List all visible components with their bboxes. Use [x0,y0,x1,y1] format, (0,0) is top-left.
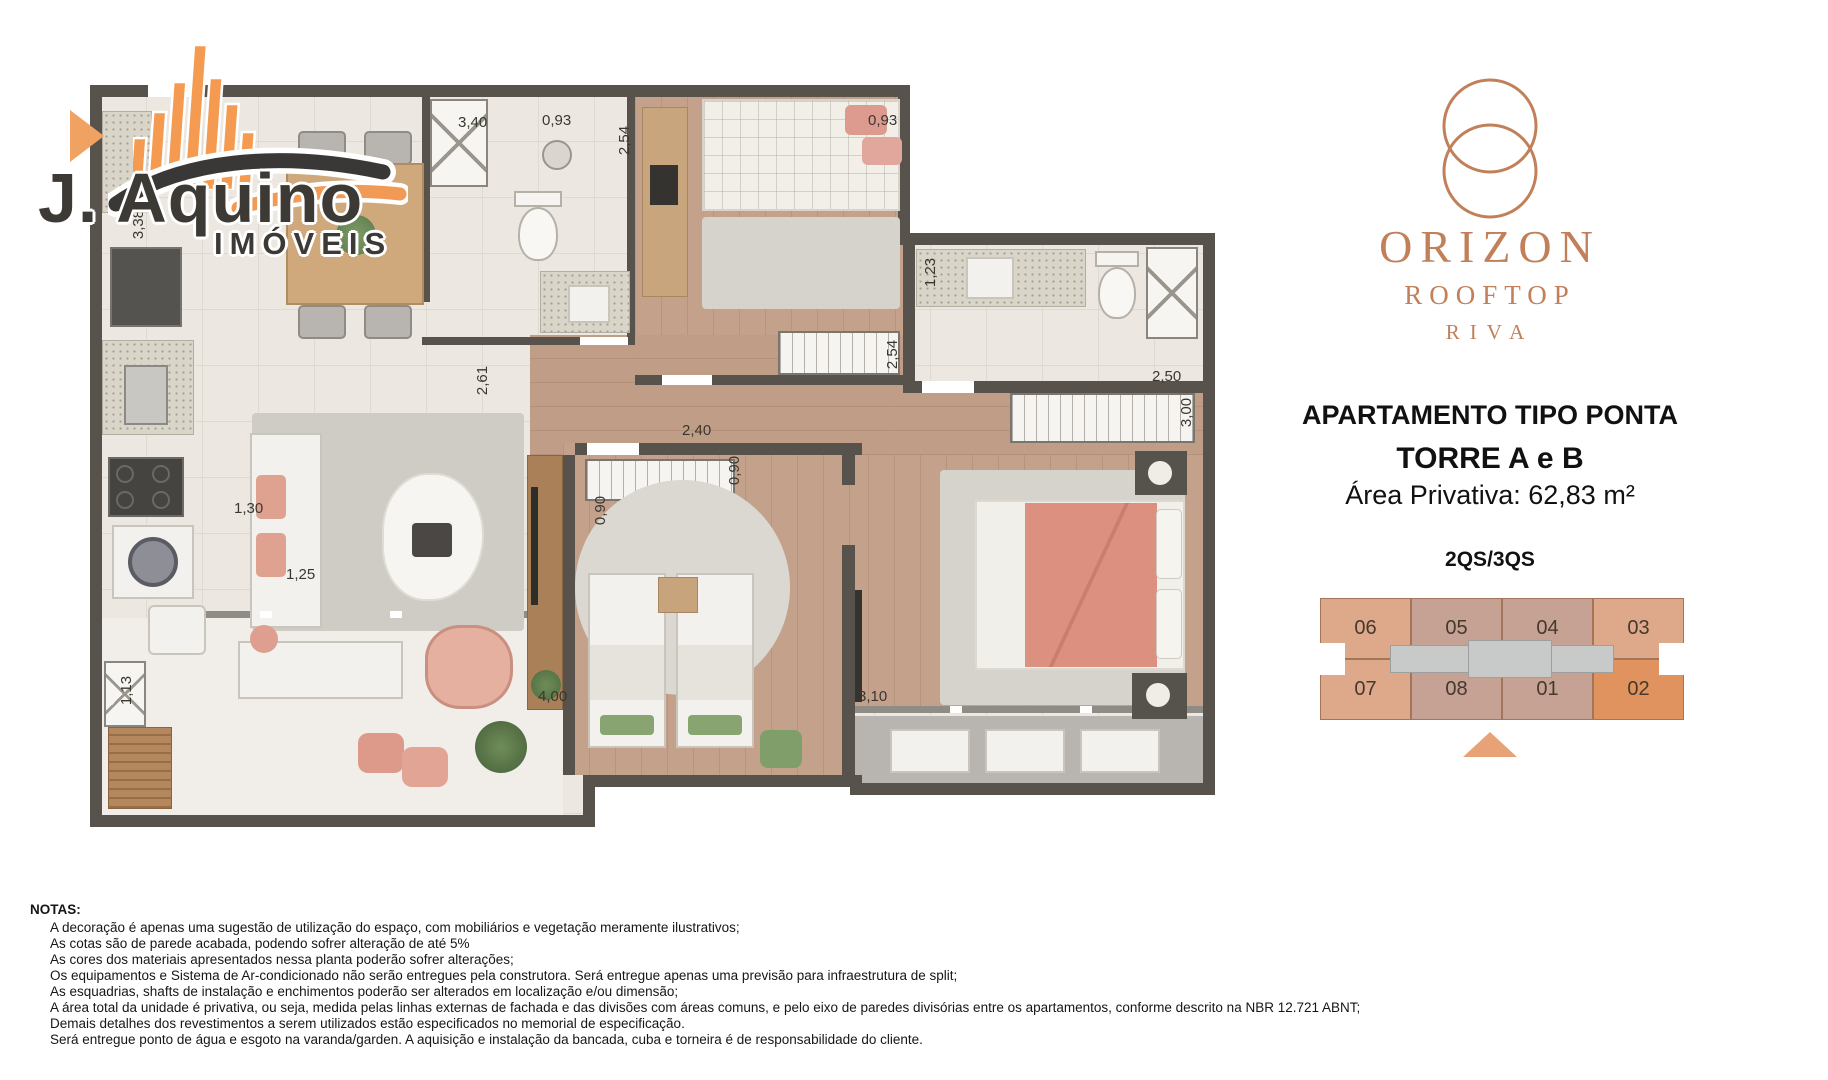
pillow [1156,509,1182,579]
pink-pillow [862,137,902,165]
keyplan: 06 05 04 03 07 08 01 02 [1320,598,1684,720]
bedroom-config-label: 2QS/3QS [1270,548,1710,572]
twin-door-gap [587,443,639,455]
project-line2: ROOFTOP [1270,280,1710,311]
exterior-step-2 [850,795,1215,827]
dim-label: 3,00 [1179,398,1194,427]
notes-heading: NOTAS: [30,902,1590,917]
pillow [1156,589,1182,659]
note-line: A área total da unidade é privativa, ou … [30,1000,1590,1016]
armchair [425,625,513,709]
dim-label: 4,00 [538,689,567,704]
wall-bottom-right [850,783,1215,795]
pouf [402,747,448,787]
shower-box-suite [1146,247,1198,339]
wall-right [1203,233,1215,795]
tv-panel [531,487,538,605]
jaquino-watermark: J. Aquino IMÓVEIS [28,30,458,270]
balcony-bench [985,729,1065,773]
slider-gap [390,611,402,618]
orizon-circles-icon [1415,76,1565,226]
burner [116,491,134,509]
master-bed-blanket [1025,503,1157,667]
exterior-step-1 [595,787,850,827]
note-line: As cotas são de parede acabada, podendo … [30,936,1590,952]
bathroom-sink-round [542,140,572,170]
twin-bed-blanket [590,645,664,700]
wall-bottom-left [90,815,595,827]
project-name: ORIZON [1270,220,1710,273]
note-line: Será entregue ponto de água e esgoto na … [30,1032,1590,1048]
wardrobe [778,331,900,375]
tower-label: TORRE A e B [1270,442,1710,476]
vanity-sink [568,285,610,323]
apartment-type-title: APARTAMENTO TIPO PONTA [1270,400,1710,431]
dim-label: 0,90 [727,456,742,485]
slider-gap [950,706,962,713]
wardrobe-master [1010,393,1195,443]
laptop [650,165,678,205]
dim-label: 1,23 [923,258,938,287]
side-table [250,625,278,653]
dim-label: 1,30 [234,501,263,516]
keyplan-corridor-core [1468,640,1552,678]
vanity-sink-suite [966,257,1014,299]
balcony-bench [890,729,970,773]
lamp [1146,683,1170,707]
bath2-door-gap [922,381,974,393]
toilet-tank-suite [1095,251,1139,267]
green-runner [600,715,654,735]
lamp [1148,461,1172,485]
twin-bed-blanket [678,645,752,700]
wall-suite-top [903,233,1215,245]
slider-gap [260,611,272,618]
watermark-subtitle: IMÓVEIS [214,226,392,262]
tv-panel-master [855,590,862,702]
slider-gap [1080,706,1092,713]
note-line: Os equipamentos e Sistema de Ar-condicio… [30,968,1590,984]
grill-cabinet [108,727,172,809]
note-line: As cores dos materiais apresentados ness… [30,952,1590,968]
project-line3: RIVA [1270,320,1710,345]
burner [116,465,134,483]
sofa [250,433,322,628]
dining-chair [298,305,346,339]
balcony-bench [1080,729,1160,773]
keyplan-notch-left [1319,643,1345,675]
dim-label: 0,90 [593,496,608,525]
sofa-cushion [256,533,286,577]
rug [702,217,900,309]
burner [152,491,170,509]
plant [475,721,527,773]
note-line: Demais detalhes dos revestimentos a sere… [30,1016,1590,1032]
burner [152,465,170,483]
dim-label: 1,13 [119,676,134,705]
toilet [518,207,558,261]
info-panel: ORIZON ROOFTOP RIVA APARTAMENTO TIPO PON… [1270,70,1710,790]
note-line: A decoração é apenas uma sugestão de uti… [30,920,1590,936]
dim-label: 3,10 [858,689,887,704]
bedroom1-door-gap [662,375,712,385]
toilet-tank [514,191,562,207]
dim-label: 0,93 [542,113,571,128]
notes-section: NOTAS: A decoração é apenas uma sugestão… [30,902,1590,1048]
dim-label: 3,40 [458,115,487,130]
keyplan-notch-right [1659,643,1685,675]
nightstand-twin [658,577,698,613]
kitchen-sink [124,365,168,425]
green-runner [688,715,742,735]
bath1-door-gap [580,337,628,345]
arrow-icon [70,110,104,162]
dim-label: 0,93 [868,113,897,128]
toilet-suite [1098,267,1136,319]
washer-drum [128,537,178,587]
wall-bottom-twin [595,775,862,787]
wall-bath2-left [903,245,915,390]
green-stool [760,730,802,768]
note-line: As esquadrias, shafts de instalação e en… [30,984,1590,1000]
laundry-tank [148,605,206,655]
dining-chair [364,305,412,339]
dim-label: 2,50 [1152,369,1181,384]
tray [412,523,452,557]
dim-label: 2,61 [475,366,490,395]
dim-label: 2,54 [617,126,632,155]
exterior-notch [910,85,1215,233]
wall-master-left-lower [842,545,855,775]
position-pointer-icon [1463,732,1517,757]
dim-label: 1,25 [286,567,315,582]
wall-master-left-upper [842,443,855,485]
dim-label: 2,40 [682,423,711,438]
private-area-label: Área Privativa: 62,83 m² [1270,480,1710,511]
dim-label: 2,54 [885,340,900,369]
wall-twin-left [563,455,575,775]
pouf [358,733,404,773]
